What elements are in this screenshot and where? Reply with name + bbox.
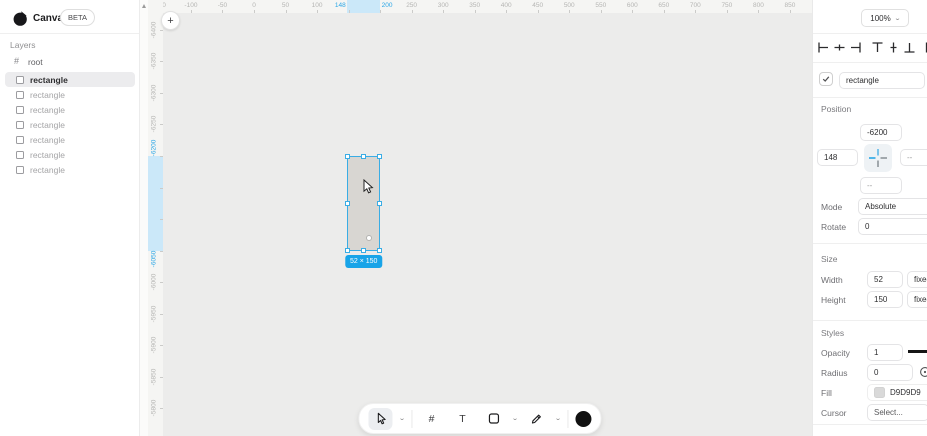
ruler-label: 250 [406, 2, 417, 9]
ruler-label: -6300 [150, 85, 157, 102]
text-tool-icon: T [459, 413, 465, 425]
ruler-tick [443, 10, 444, 14]
chevron-down-icon: ⌄ [894, 15, 901, 22]
ruler-label: 300 [438, 2, 449, 9]
position-y-input[interactable]: -6200 [860, 124, 902, 141]
ruler-label: -6350 [150, 53, 157, 70]
ruler-label: 850 [784, 2, 795, 9]
width-input[interactable]: 52 [867, 271, 903, 288]
ruler-tick [160, 61, 164, 62]
ruler-label: 750 [721, 2, 732, 9]
layer-label: rectangle [30, 120, 65, 130]
width-mode-dropdown[interactable]: fixed [907, 271, 927, 288]
alignment-toolbar [817, 40, 927, 54]
ruler-tick [222, 10, 223, 14]
ruler-tick [160, 30, 164, 31]
ruler-label: -5900 [150, 337, 157, 354]
position-x-input[interactable]: 148 [817, 149, 858, 166]
layer-item-rectangle[interactable]: rectangle [5, 162, 135, 177]
width-label: Width [821, 275, 843, 285]
frame-tool-button[interactable]: # [419, 408, 443, 430]
select-tool-chevron-icon[interactable]: ⌄ [398, 415, 405, 422]
align-left-icon[interactable] [817, 41, 830, 54]
height-mode-dropdown[interactable]: fixed [907, 291, 927, 308]
ruler-tick [506, 10, 507, 14]
ruler-tick [160, 124, 164, 125]
pen-tool-button[interactable] [525, 408, 549, 430]
mouse-cursor-icon [362, 179, 374, 195]
opacity-slider[interactable] [908, 350, 927, 353]
shape-tool-button[interactable] [481, 408, 505, 430]
ruler-label: 350 [469, 2, 480, 9]
rectangle-layer-icon [16, 106, 24, 114]
ruler-tick [254, 10, 255, 14]
canvas-app-window: Canvas BETA Layers # root rectanglerecta… [0, 0, 927, 436]
ruler-label: 100 [312, 2, 323, 9]
ruler-label: -6400 [150, 22, 157, 39]
resize-handle-middle-right[interactable] [377, 201, 382, 206]
rectangle-layer-icon [16, 121, 24, 129]
rectangle-icon [488, 413, 499, 424]
resize-handle-top-left[interactable] [345, 154, 350, 159]
cursor-label: Cursor [821, 408, 847, 418]
position-cross-icon [864, 144, 892, 172]
ruler-label: -100 [184, 2, 197, 9]
layer-item-root[interactable]: # root [0, 55, 140, 70]
resize-handle-top-right[interactable] [377, 154, 382, 159]
ruler-label: 400 [501, 2, 512, 9]
selected-rectangle[interactable] [347, 156, 380, 251]
radius-input[interactable]: 0 [867, 364, 913, 381]
layer-label: rectangle [30, 90, 65, 100]
add-button[interactable]: + [161, 11, 180, 30]
panel-divider [813, 33, 927, 34]
ruler-selection-label: 200 [382, 2, 393, 9]
toolbar-divider [411, 410, 412, 428]
layer-item-rectangle[interactable]: rectangle [5, 87, 135, 102]
layers-section-label: Layers [10, 40, 36, 50]
ruler-tick [569, 10, 570, 14]
panel-divider [813, 320, 927, 321]
panel-divider [813, 424, 927, 425]
rectangle-layer-icon [16, 166, 24, 174]
rectangle-layer-icon [16, 151, 24, 159]
ruler-tick [412, 10, 413, 14]
position-section-label: Position [821, 104, 851, 114]
cursor-arrow-icon [375, 412, 386, 426]
independent-corners-icon[interactable] [919, 366, 927, 378]
resize-handle-top-middle[interactable] [361, 154, 366, 159]
check-icon [822, 75, 830, 83]
fill-value[interactable]: D9D9D9 [867, 384, 927, 401]
ruler-tick [349, 10, 350, 14]
layers-sidebar: Canvas BETA Layers # root rectanglerecta… [0, 0, 140, 436]
opacity-input[interactable]: 1 [867, 344, 903, 361]
ruler-label: -5950 [150, 305, 157, 322]
ruler-tick [160, 345, 164, 346]
resize-handle-bottom-middle[interactable] [361, 248, 366, 253]
ruler-label: 800 [753, 2, 764, 9]
ruler-tick [317, 10, 318, 14]
resize-handle-middle-left[interactable] [345, 201, 350, 206]
position-bottom-input[interactable]: -- [860, 177, 902, 194]
sidebar-scrollbar[interactable] [140, 0, 148, 436]
layer-label: rectangle [30, 165, 65, 175]
zoom-value: 100% [870, 14, 890, 23]
select-tool-button[interactable] [368, 408, 392, 430]
ruler-tick [160, 377, 164, 378]
layer-item-rectangle[interactable]: rectangle [5, 132, 135, 147]
ruler-tick [475, 10, 476, 14]
beta-badge: BETA [60, 9, 95, 26]
dimension-badge: 52 × 150 [345, 255, 382, 268]
align-bottom-icon[interactable] [903, 41, 916, 54]
align-center-horizontal-icon[interactable] [833, 41, 846, 54]
ruler-tick [191, 10, 192, 14]
layer-label: rectangle [30, 150, 65, 160]
sidebar-divider [0, 33, 139, 34]
vertical-ruler: -6400-6350-6300-6250-6000-5950-5900-5850… [148, 13, 163, 436]
rectangle-layer-icon [16, 76, 24, 84]
scroll-up-arrow-icon[interactable] [142, 4, 146, 8]
ruler-label: 650 [658, 2, 669, 9]
layer-label: rectangle [30, 135, 65, 145]
position-anchor-widget[interactable] [864, 144, 892, 172]
ruler-selection-label: 148 [335, 2, 346, 9]
color-swatch-button[interactable] [576, 411, 592, 427]
shape-tool-chevron-icon[interactable]: ⌄ [511, 415, 518, 422]
mode-dropdown[interactable]: Absolute [858, 198, 927, 215]
ruler-label: -50 [218, 2, 227, 9]
resize-handle-bottom-right[interactable] [377, 248, 382, 253]
ruler-label: -5850 [150, 368, 157, 385]
align-top-icon[interactable] [871, 41, 884, 54]
ruler-tick [790, 10, 791, 14]
layer-item-rectangle[interactable]: rectangle [5, 147, 135, 162]
ruler-tick [758, 10, 759, 14]
pencil-icon [531, 413, 543, 425]
ruler-label: -6250 [150, 116, 157, 133]
zoom-dropdown[interactable]: 100% ⌄ [861, 9, 909, 27]
mode-label: Mode [821, 202, 842, 212]
layer-item-rectangle[interactable]: rectangle [5, 102, 135, 117]
layer-label: root [28, 57, 43, 67]
ruler-label: 600 [627, 2, 638, 9]
text-tool-button[interactable]: T [450, 408, 474, 430]
app-header: Canvas BETA [0, 0, 139, 33]
rotate-input[interactable]: 0 [858, 218, 927, 235]
radius-label: Radius [821, 368, 847, 378]
opacity-label: Opacity [821, 348, 850, 358]
ruler-tick [160, 156, 164, 157]
frame-hash-icon: # [14, 56, 19, 66]
fill-label: Fill [821, 388, 832, 398]
ruler-label: -6000 [150, 274, 157, 291]
hash-icon: # [429, 413, 435, 425]
ruler-label: 0 [252, 2, 256, 9]
layer-label: rectangle [30, 75, 68, 85]
tools-toolbar: ⌄ # T ⌄ ⌄ [358, 403, 601, 434]
ruler-tick [160, 282, 164, 283]
pen-tool-chevron-icon[interactable]: ⌄ [555, 415, 562, 422]
panel-divider [813, 62, 927, 63]
horizontal-ruler: -150-100-5005010025030035040045050055060… [148, 0, 812, 13]
rectangle-layer-icon [16, 91, 24, 99]
fill-hex-value: D9D9D9 [890, 388, 921, 397]
ruler-label: 550 [595, 2, 606, 9]
ruler-tick [160, 93, 164, 94]
ruler-label: 450 [532, 2, 543, 9]
ruler-tick [538, 10, 539, 14]
panel-divider [813, 243, 927, 244]
ruler-label: -5800 [150, 400, 157, 417]
styles-section-label: Styles [821, 328, 844, 338]
height-label: Height [821, 295, 846, 305]
layer-label: rectangle [30, 105, 65, 115]
inspector-panel: 100% ⌄ rectangle [812, 0, 927, 436]
canvas-viewport[interactable]: -150-100-5005010025030035040045050055060… [148, 0, 812, 436]
panel-divider [813, 97, 927, 98]
ruler-tick [380, 10, 381, 14]
canvas-logo-icon [12, 10, 29, 27]
layer-visibility-checkbox[interactable] [819, 72, 833, 86]
ruler-tick [601, 10, 602, 14]
ruler-selection-highlight [148, 156, 163, 251]
ruler-label: 50 [282, 2, 289, 9]
ruler-corner [148, 0, 163, 13]
align-middle-vertical-icon[interactable] [887, 41, 900, 54]
ruler-tick [727, 10, 728, 14]
ruler-tick [286, 10, 287, 14]
resize-handle-bottom-left[interactable] [345, 248, 350, 253]
toolbar-divider [568, 410, 569, 428]
ruler-tick [160, 188, 164, 189]
ruler-tick [695, 10, 696, 14]
layer-name-input[interactable]: rectangle [839, 72, 925, 89]
layer-list: rectanglerectanglerectanglerectanglerect… [0, 72, 140, 177]
size-section-label: Size [821, 254, 838, 264]
ruler-selection-label: -6050 [150, 250, 157, 267]
radius-handle[interactable] [366, 235, 372, 241]
ruler-tick [160, 251, 164, 252]
ruler-tick [160, 219, 164, 220]
height-input[interactable]: 150 [867, 291, 903, 308]
ruler-tick [160, 408, 164, 409]
ruler-tick [632, 10, 633, 14]
ruler-selection-highlight [347, 0, 380, 13]
align-right-icon[interactable] [849, 41, 862, 54]
ruler-label: 700 [690, 2, 701, 9]
ruler-label: 500 [564, 2, 575, 9]
fill-color-swatch[interactable] [874, 387, 885, 398]
ruler-selection-label: -6200 [150, 140, 157, 157]
layer-item-rectangle[interactable]: rectangle [5, 72, 135, 87]
layer-item-rectangle[interactable]: rectangle [5, 117, 135, 132]
cursor-dropdown[interactable]: Select... [867, 404, 927, 421]
ruler-tick [160, 314, 164, 315]
ruler-tick [664, 10, 665, 14]
position-right-input[interactable]: -- [900, 149, 927, 166]
rotate-label: Rotate [821, 222, 846, 232]
rectangle-layer-icon [16, 136, 24, 144]
